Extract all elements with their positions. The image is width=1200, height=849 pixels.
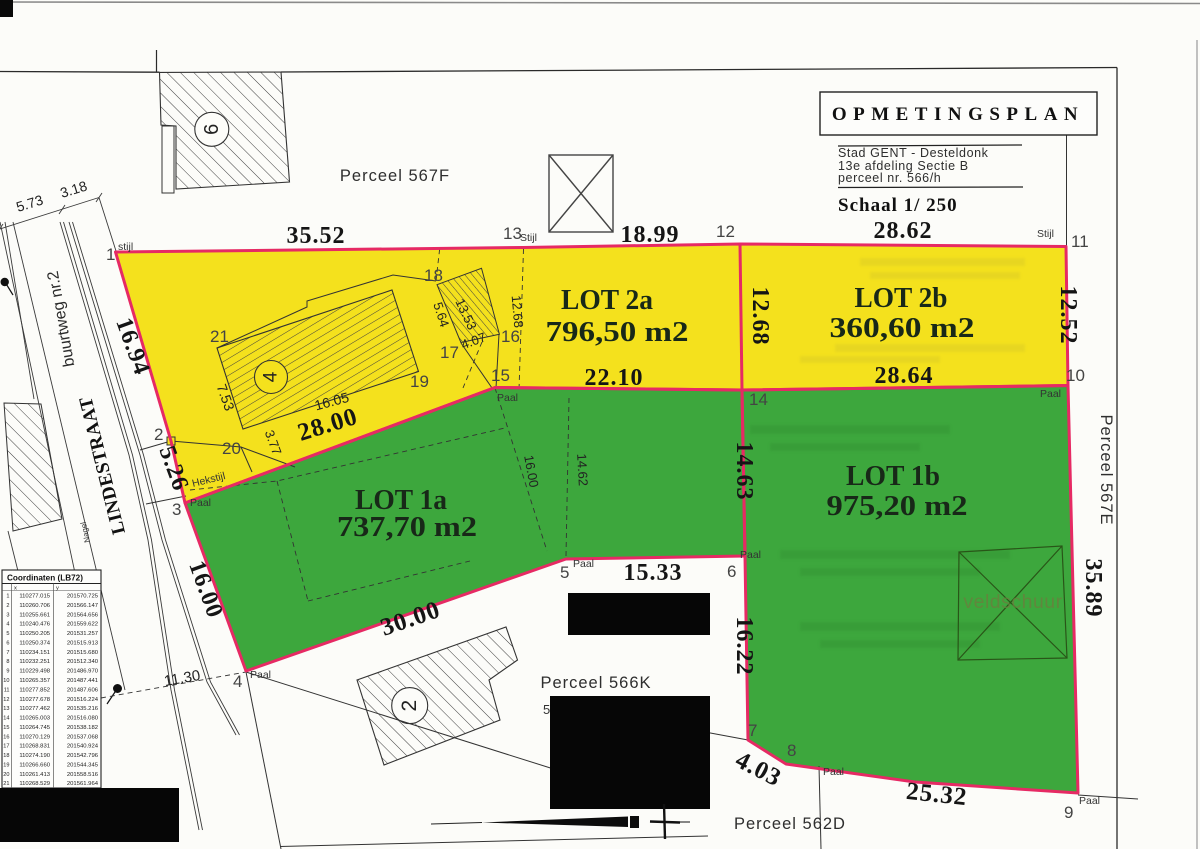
svg-text:110270.129: 110270.129 bbox=[19, 734, 50, 740]
svg-text:110261.413: 110261.413 bbox=[19, 772, 50, 778]
svg-text:3: 3 bbox=[6, 612, 9, 618]
svg-text:17: 17 bbox=[440, 343, 459, 362]
svg-text:12.52: 12.52 bbox=[1055, 286, 1081, 345]
svg-text:16: 16 bbox=[3, 734, 9, 740]
svg-text:Schaal 1/ 250: Schaal 1/ 250 bbox=[838, 195, 958, 216]
svg-text:35.89: 35.89 bbox=[1080, 559, 1106, 618]
svg-text:16.22: 16.22 bbox=[731, 617, 757, 676]
svg-text:11: 11 bbox=[1071, 232, 1089, 251]
svg-text:LOT 2a: LOT 2a bbox=[561, 285, 653, 316]
svg-text:12.68: 12.68 bbox=[509, 295, 527, 329]
svg-text:2: 2 bbox=[6, 603, 9, 609]
svg-text:110265.003: 110265.003 bbox=[19, 716, 50, 722]
svg-text:5: 5 bbox=[6, 631, 9, 637]
svg-text:18.99: 18.99 bbox=[621, 222, 680, 248]
svg-text:22.10: 22.10 bbox=[585, 365, 644, 391]
svg-text:perceel nr. 566/h: perceel nr. 566/h bbox=[838, 171, 941, 185]
svg-text:Stijl: Stijl bbox=[1037, 228, 1054, 240]
svg-text:7: 7 bbox=[6, 650, 9, 656]
svg-text:Perceel 566K: Perceel 566K bbox=[540, 674, 651, 692]
svg-text:17: 17 bbox=[3, 744, 9, 750]
svg-text:13: 13 bbox=[3, 706, 9, 712]
svg-text:14: 14 bbox=[3, 716, 9, 722]
svg-text:OPMETINGSPLAN: OPMETINGSPLAN bbox=[832, 104, 1084, 125]
svg-text:201516.224: 201516.224 bbox=[67, 697, 99, 703]
svg-text:110229.498: 110229.498 bbox=[19, 669, 50, 675]
svg-text:19: 19 bbox=[3, 762, 9, 768]
svg-text:9: 9 bbox=[6, 669, 9, 675]
svg-text:veldschuur: veldschuur bbox=[963, 591, 1062, 613]
svg-text:Paal: Paal bbox=[1079, 795, 1100, 807]
svg-text:15: 15 bbox=[3, 725, 9, 731]
svg-text:Stad GENT - Desteldonk: Stad GENT - Desteldonk bbox=[838, 146, 989, 160]
svg-text:201487.606: 201487.606 bbox=[67, 687, 99, 693]
svg-text:201486.970: 201486.970 bbox=[67, 669, 99, 675]
svg-text:201542.796: 201542.796 bbox=[67, 753, 99, 759]
svg-text:110274.190: 110274.190 bbox=[19, 753, 50, 759]
svg-text:201540.924: 201540.924 bbox=[67, 744, 99, 750]
svg-text:201487.441: 201487.441 bbox=[67, 678, 98, 684]
svg-text:20: 20 bbox=[222, 439, 241, 458]
svg-text:110277.462: 110277.462 bbox=[19, 706, 50, 712]
svg-text:Paal: Paal bbox=[740, 549, 761, 561]
svg-text:10: 10 bbox=[3, 678, 9, 684]
svg-text:110255.661: 110255.661 bbox=[19, 612, 50, 618]
svg-text:21: 21 bbox=[3, 781, 9, 787]
svg-text:796,50 m2: 796,50 m2 bbox=[546, 317, 689, 348]
svg-text:201512.340: 201512.340 bbox=[67, 659, 99, 665]
svg-text:110234.151: 110234.151 bbox=[19, 650, 50, 656]
svg-text:Paal: Paal bbox=[497, 392, 518, 404]
svg-text:6: 6 bbox=[727, 562, 736, 581]
svg-text:6: 6 bbox=[201, 124, 223, 135]
svg-text:Stijl: Stijl bbox=[520, 232, 537, 244]
svg-text:201535.216: 201535.216 bbox=[67, 706, 99, 712]
svg-text:110260.706: 110260.706 bbox=[19, 603, 50, 609]
svg-text:110232.251: 110232.251 bbox=[19, 659, 50, 665]
svg-text:12.68: 12.68 bbox=[747, 287, 773, 346]
svg-text:10: 10 bbox=[1066, 366, 1085, 385]
svg-text:stijl: stijl bbox=[118, 241, 133, 253]
svg-text:360,60 m2: 360,60 m2 bbox=[830, 313, 975, 344]
svg-text:4: 4 bbox=[6, 622, 9, 628]
svg-text:Paal: Paal bbox=[250, 669, 271, 681]
svg-text:Paal: Paal bbox=[190, 497, 211, 509]
svg-text:8: 8 bbox=[787, 741, 796, 760]
svg-text:15: 15 bbox=[491, 366, 510, 385]
svg-text:7: 7 bbox=[748, 721, 757, 740]
svg-text:Paal: Paal bbox=[1040, 388, 1061, 400]
svg-text:110264.745: 110264.745 bbox=[19, 725, 50, 731]
svg-text:14.63: 14.63 bbox=[731, 442, 757, 501]
svg-text:15.33: 15.33 bbox=[624, 560, 683, 586]
svg-text:201564.656: 201564.656 bbox=[67, 612, 99, 618]
svg-text:2: 2 bbox=[398, 700, 421, 712]
svg-text:201570.725: 201570.725 bbox=[67, 594, 99, 600]
svg-text:201561.964: 201561.964 bbox=[67, 781, 99, 787]
svg-text:28.62: 28.62 bbox=[874, 218, 933, 244]
svg-text:20: 20 bbox=[3, 772, 9, 778]
svg-text:18: 18 bbox=[424, 266, 443, 285]
svg-text:1: 1 bbox=[6, 594, 9, 600]
svg-text:Paal: Paal bbox=[823, 766, 844, 778]
svg-text:5: 5 bbox=[560, 563, 569, 582]
svg-text:y: y bbox=[56, 586, 59, 592]
svg-text:11: 11 bbox=[4, 687, 10, 693]
svg-text:8: 8 bbox=[6, 659, 9, 665]
svg-text:4: 4 bbox=[233, 672, 242, 691]
svg-text:12: 12 bbox=[3, 697, 9, 703]
svg-text:35.52: 35.52 bbox=[287, 223, 346, 249]
svg-text:4: 4 bbox=[261, 371, 282, 382]
svg-text:Perceel 567E: Perceel 567E bbox=[1097, 414, 1115, 525]
svg-text:201537.068: 201537.068 bbox=[67, 734, 99, 740]
svg-text:18: 18 bbox=[3, 753, 9, 759]
svg-text:201531.257: 201531.257 bbox=[67, 631, 98, 637]
svg-text:Perceel 562D: Perceel 562D bbox=[734, 815, 846, 833]
svg-text:28.64: 28.64 bbox=[875, 363, 934, 389]
svg-text:110265.357: 110265.357 bbox=[19, 678, 50, 684]
svg-text:3: 3 bbox=[172, 500, 181, 519]
svg-text:201538.182: 201538.182 bbox=[67, 725, 98, 731]
svg-text:110268.529: 110268.529 bbox=[19, 781, 50, 787]
svg-text:201566.147: 201566.147 bbox=[67, 603, 98, 609]
svg-text:110268.831: 110268.831 bbox=[19, 744, 50, 750]
svg-text:1: 1 bbox=[106, 245, 115, 264]
svg-text:Perceel 567F: Perceel 567F bbox=[340, 167, 450, 185]
svg-text:201516.080: 201516.080 bbox=[67, 716, 99, 722]
svg-text:21: 21 bbox=[210, 327, 229, 346]
svg-text:110240.476: 110240.476 bbox=[19, 622, 50, 628]
svg-text:14: 14 bbox=[749, 390, 768, 409]
svg-text:6: 6 bbox=[6, 641, 9, 647]
svg-text:201559.622: 201559.622 bbox=[67, 622, 98, 628]
svg-text:5: 5 bbox=[543, 702, 550, 717]
svg-text:201515.680: 201515.680 bbox=[67, 650, 99, 656]
svg-text:Coordinaten (LB72): Coordinaten (LB72) bbox=[7, 574, 83, 583]
svg-text:110277.678: 110277.678 bbox=[19, 697, 50, 703]
svg-text:2: 2 bbox=[154, 425, 163, 444]
svg-text:110266.660: 110266.660 bbox=[19, 762, 50, 768]
svg-text:201515.913: 201515.913 bbox=[67, 641, 99, 647]
svg-text:LOT 2b: LOT 2b bbox=[855, 283, 948, 314]
svg-text:110250.205: 110250.205 bbox=[19, 631, 50, 637]
svg-text:16: 16 bbox=[501, 327, 520, 346]
svg-text:110277.015: 110277.015 bbox=[19, 594, 50, 600]
svg-text:LOT 1b: LOT 1b bbox=[846, 461, 940, 492]
svg-text:19: 19 bbox=[410, 372, 429, 391]
svg-text:737,70 m2: 737,70 m2 bbox=[337, 512, 477, 543]
svg-text:201558.516: 201558.516 bbox=[67, 772, 99, 778]
svg-text:12: 12 bbox=[716, 222, 735, 241]
svg-text:201544.345: 201544.345 bbox=[67, 762, 99, 768]
svg-text:110250.374: 110250.374 bbox=[19, 641, 50, 647]
svg-text:14.62: 14.62 bbox=[574, 453, 591, 486]
svg-text:110277.852: 110277.852 bbox=[19, 687, 50, 693]
svg-text:Paal: Paal bbox=[573, 558, 594, 570]
svg-text:975,20 m2: 975,20 m2 bbox=[827, 491, 968, 522]
svg-text:9: 9 bbox=[1064, 803, 1073, 822]
svg-text:x: x bbox=[14, 586, 17, 592]
